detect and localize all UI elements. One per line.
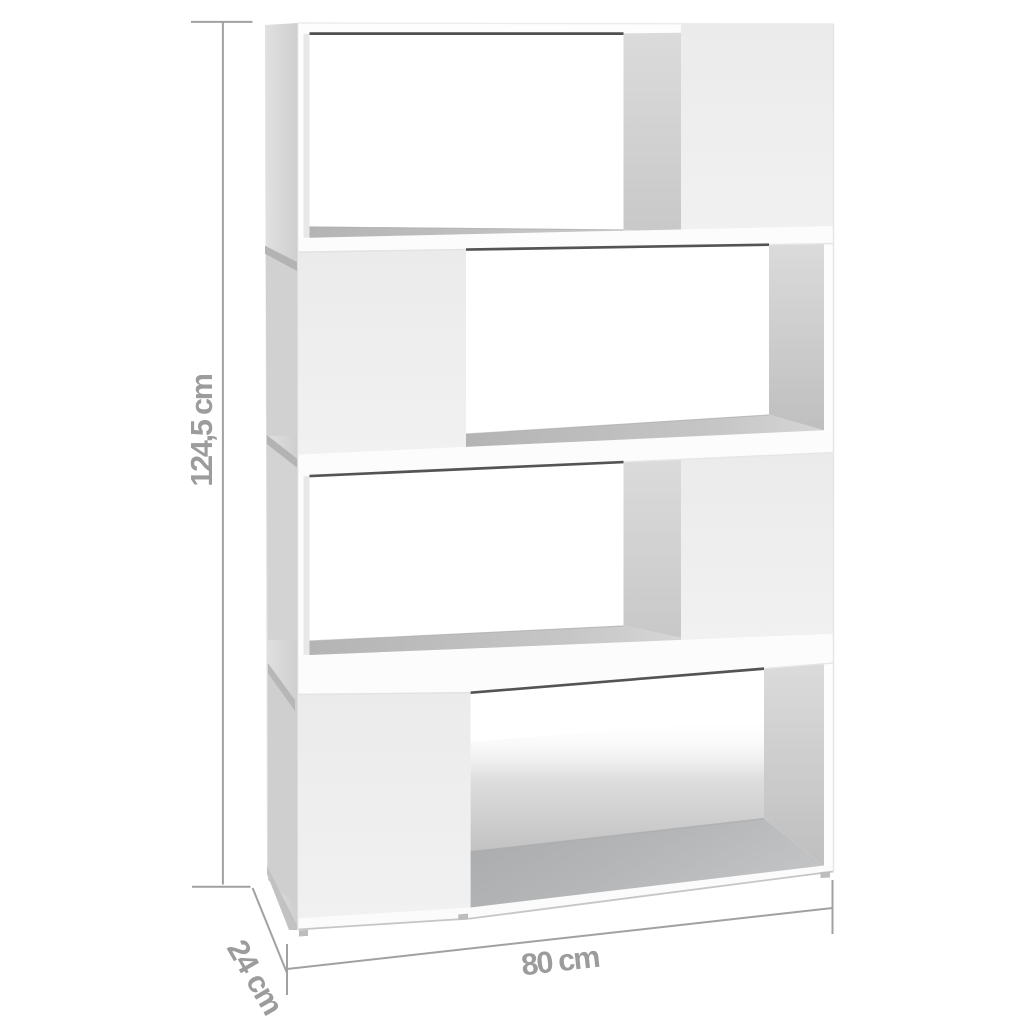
svg-text:80 cm: 80 cm	[519, 940, 600, 983]
svg-text:24 cm: 24 cm	[220, 934, 289, 1020]
svg-text:124,5 cm: 124,5 cm	[185, 374, 219, 486]
